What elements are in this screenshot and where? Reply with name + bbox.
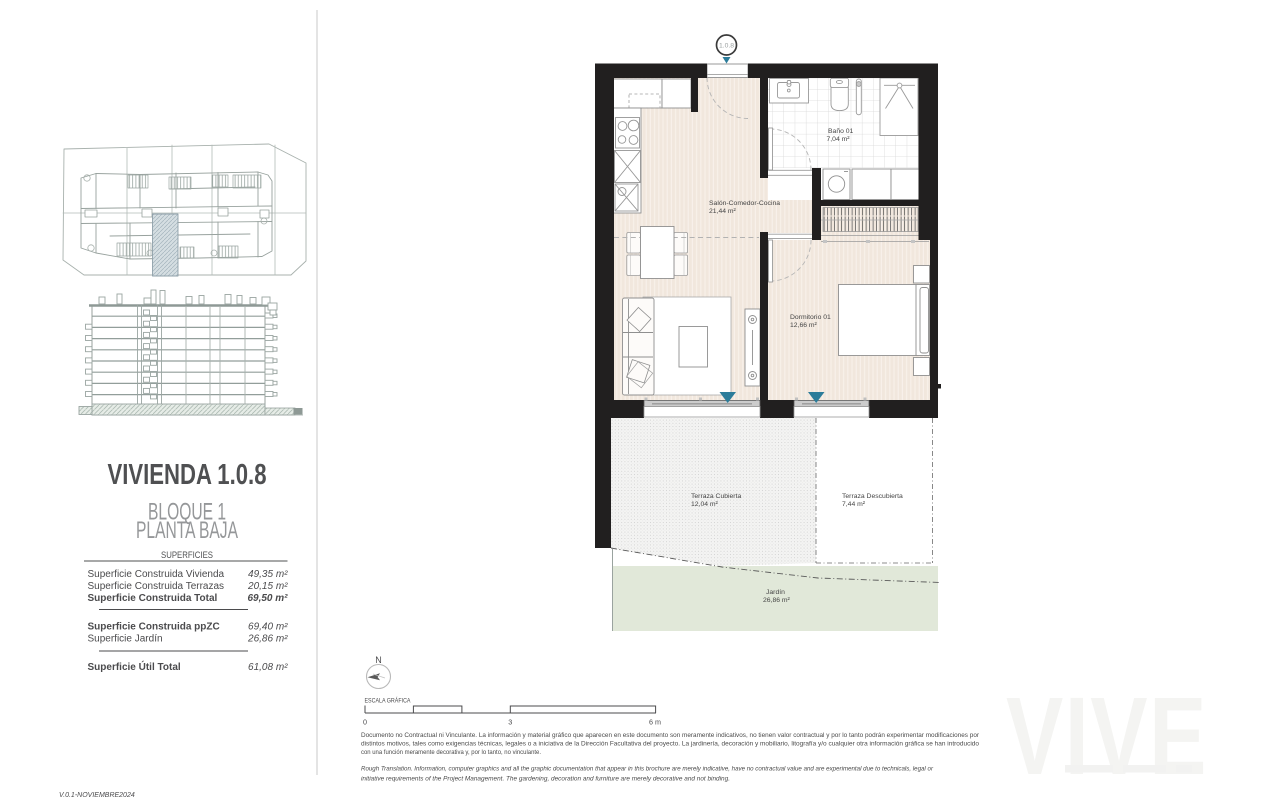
svg-text:12,66 m²: 12,66 m² (790, 322, 818, 329)
svg-text:Terraza Descubierta: Terraza Descubierta (842, 493, 903, 500)
svg-text:SUPERFICIES: SUPERFICIES (161, 550, 213, 561)
svg-text:Baño 01: Baño 01 (828, 128, 854, 135)
svg-text:3: 3 (508, 718, 512, 727)
svg-text:Dormitorio 01: Dormitorio 01 (790, 314, 831, 321)
svg-text:7,04 m²: 7,04 m² (827, 136, 851, 143)
svg-text:Superficie Construida Vivienda: Superficie Construida Vivienda (88, 569, 225, 580)
svg-text:69,50 m²: 69,50 m² (247, 593, 288, 604)
svg-text:Superficie Construida Terrazas: Superficie Construida Terrazas (88, 581, 225, 592)
svg-text:69,40 m²: 69,40 m² (248, 622, 288, 633)
svg-text:Documento no Contractual ni Vi: Documento no Contractual ni Vinculante. … (361, 733, 979, 739)
svg-text:Rough Translation. Information: Rough Translation. Information, computer… (361, 766, 934, 772)
svg-text:20,15 m²: 20,15 m² (247, 581, 288, 592)
svg-text:ESCALA GRÁFICA: ESCALA GRÁFICA (365, 698, 412, 705)
svg-text:26,86 m²: 26,86 m² (247, 634, 288, 645)
svg-text:Superficie Útil Total: Superficie Útil Total (88, 660, 181, 673)
svg-text:VIVIENDA 1.0.8: VIVIENDA 1.0.8 (108, 459, 267, 491)
svg-text:Superficie Construida Total: Superficie Construida Total (88, 593, 218, 604)
svg-text:Superficie Construida ppZC: Superficie Construida ppZC (88, 622, 220, 633)
svg-text:PLANTA BAJA: PLANTA BAJA (136, 517, 238, 544)
svg-text:21,44 m²: 21,44 m² (709, 208, 737, 215)
svg-text:26,86 m²: 26,86 m² (763, 597, 791, 604)
svg-text:Terraza Cubierta: Terraza Cubierta (691, 493, 741, 500)
svg-text:V.0.1-NOVIEMBRE2024: V.0.1-NOVIEMBRE2024 (59, 792, 135, 799)
svg-text:Superficie Jardín: Superficie Jardín (88, 634, 163, 645)
svg-text:distintos motivos, tales como: distintos motivos, tales como exigencias… (361, 741, 980, 747)
svg-text:7,44 m²: 7,44 m² (842, 501, 866, 508)
svg-text:Salón-Comedor-Cocina: Salón-Comedor-Cocina (709, 200, 780, 207)
svg-text:0: 0 (363, 718, 367, 727)
svg-text:12,04 m²: 12,04 m² (691, 501, 719, 508)
svg-text:VIVE: VIVE (1006, 675, 1208, 798)
svg-text:61,08 m²: 61,08 m² (248, 662, 288, 673)
svg-text:49,35 m²: 49,35 m² (248, 569, 288, 580)
svg-text:Jardín: Jardín (766, 589, 785, 596)
svg-text:1.0.8: 1.0.8 (719, 43, 734, 50)
svg-text:initiative requirements of the: initiative requirements of the Project M… (361, 777, 730, 783)
svg-text:N: N (375, 655, 382, 665)
svg-text:con una función meramente deco: con una función meramente decorativa y, … (361, 750, 541, 756)
svg-text:6 m: 6 m (649, 718, 661, 727)
